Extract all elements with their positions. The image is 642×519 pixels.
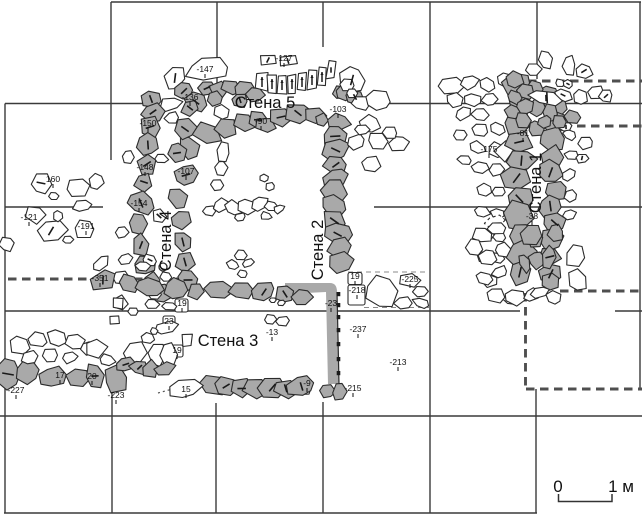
svg-text:-23: -23 <box>325 298 338 308</box>
svg-text:23: 23 <box>164 316 174 326</box>
svg-text:-223: -223 <box>107 390 124 400</box>
svg-text:-351: -351 <box>91 273 108 283</box>
svg-text:-218: -218 <box>348 285 365 295</box>
svg-text:-107: -107 <box>177 166 194 176</box>
svg-text:19: 19 <box>350 271 360 281</box>
svg-text:19: 19 <box>177 298 187 308</box>
svg-text:-136: -136 <box>181 92 198 102</box>
svg-text:1 м: 1 м <box>608 477 634 496</box>
svg-text:Стена 2: Стена 2 <box>309 220 327 281</box>
svg-text:-127: -127 <box>275 53 292 63</box>
svg-text:-154: -154 <box>130 198 147 208</box>
svg-text:-175: -175 <box>480 144 497 154</box>
svg-text:-237: -237 <box>349 324 366 334</box>
svg-text:-215: -215 <box>344 383 361 393</box>
svg-text:-103: -103 <box>329 104 346 114</box>
svg-text:-191: -191 <box>77 221 94 231</box>
svg-text:-90: -90 <box>255 116 268 126</box>
svg-text:Стена 4: Стена 4 <box>157 211 175 272</box>
svg-text:20: 20 <box>87 371 97 381</box>
svg-text:-227: -227 <box>7 385 24 395</box>
svg-text:17: 17 <box>55 370 65 380</box>
svg-text:-150: -150 <box>139 118 156 128</box>
svg-text:-13: -13 <box>266 327 279 337</box>
svg-text:19: 19 <box>172 345 182 355</box>
svg-text:-148: -148 <box>136 162 153 172</box>
svg-text:0: 0 <box>553 477 562 496</box>
svg-text:Стена 1: Стена 1 <box>527 153 545 214</box>
svg-text:Стена 3: Стена 3 <box>198 332 259 350</box>
svg-text:-121: -121 <box>20 212 37 222</box>
svg-text:Стена 5: Стена 5 <box>235 94 296 112</box>
svg-text:-81: -81 <box>517 128 530 138</box>
svg-text:-9: -9 <box>303 378 311 388</box>
svg-text:-213: -213 <box>389 357 406 367</box>
svg-text:-147: -147 <box>196 64 213 74</box>
svg-text:-225: -225 <box>401 274 418 284</box>
svg-text:15: 15 <box>181 384 191 394</box>
svg-text:160: 160 <box>46 174 60 184</box>
